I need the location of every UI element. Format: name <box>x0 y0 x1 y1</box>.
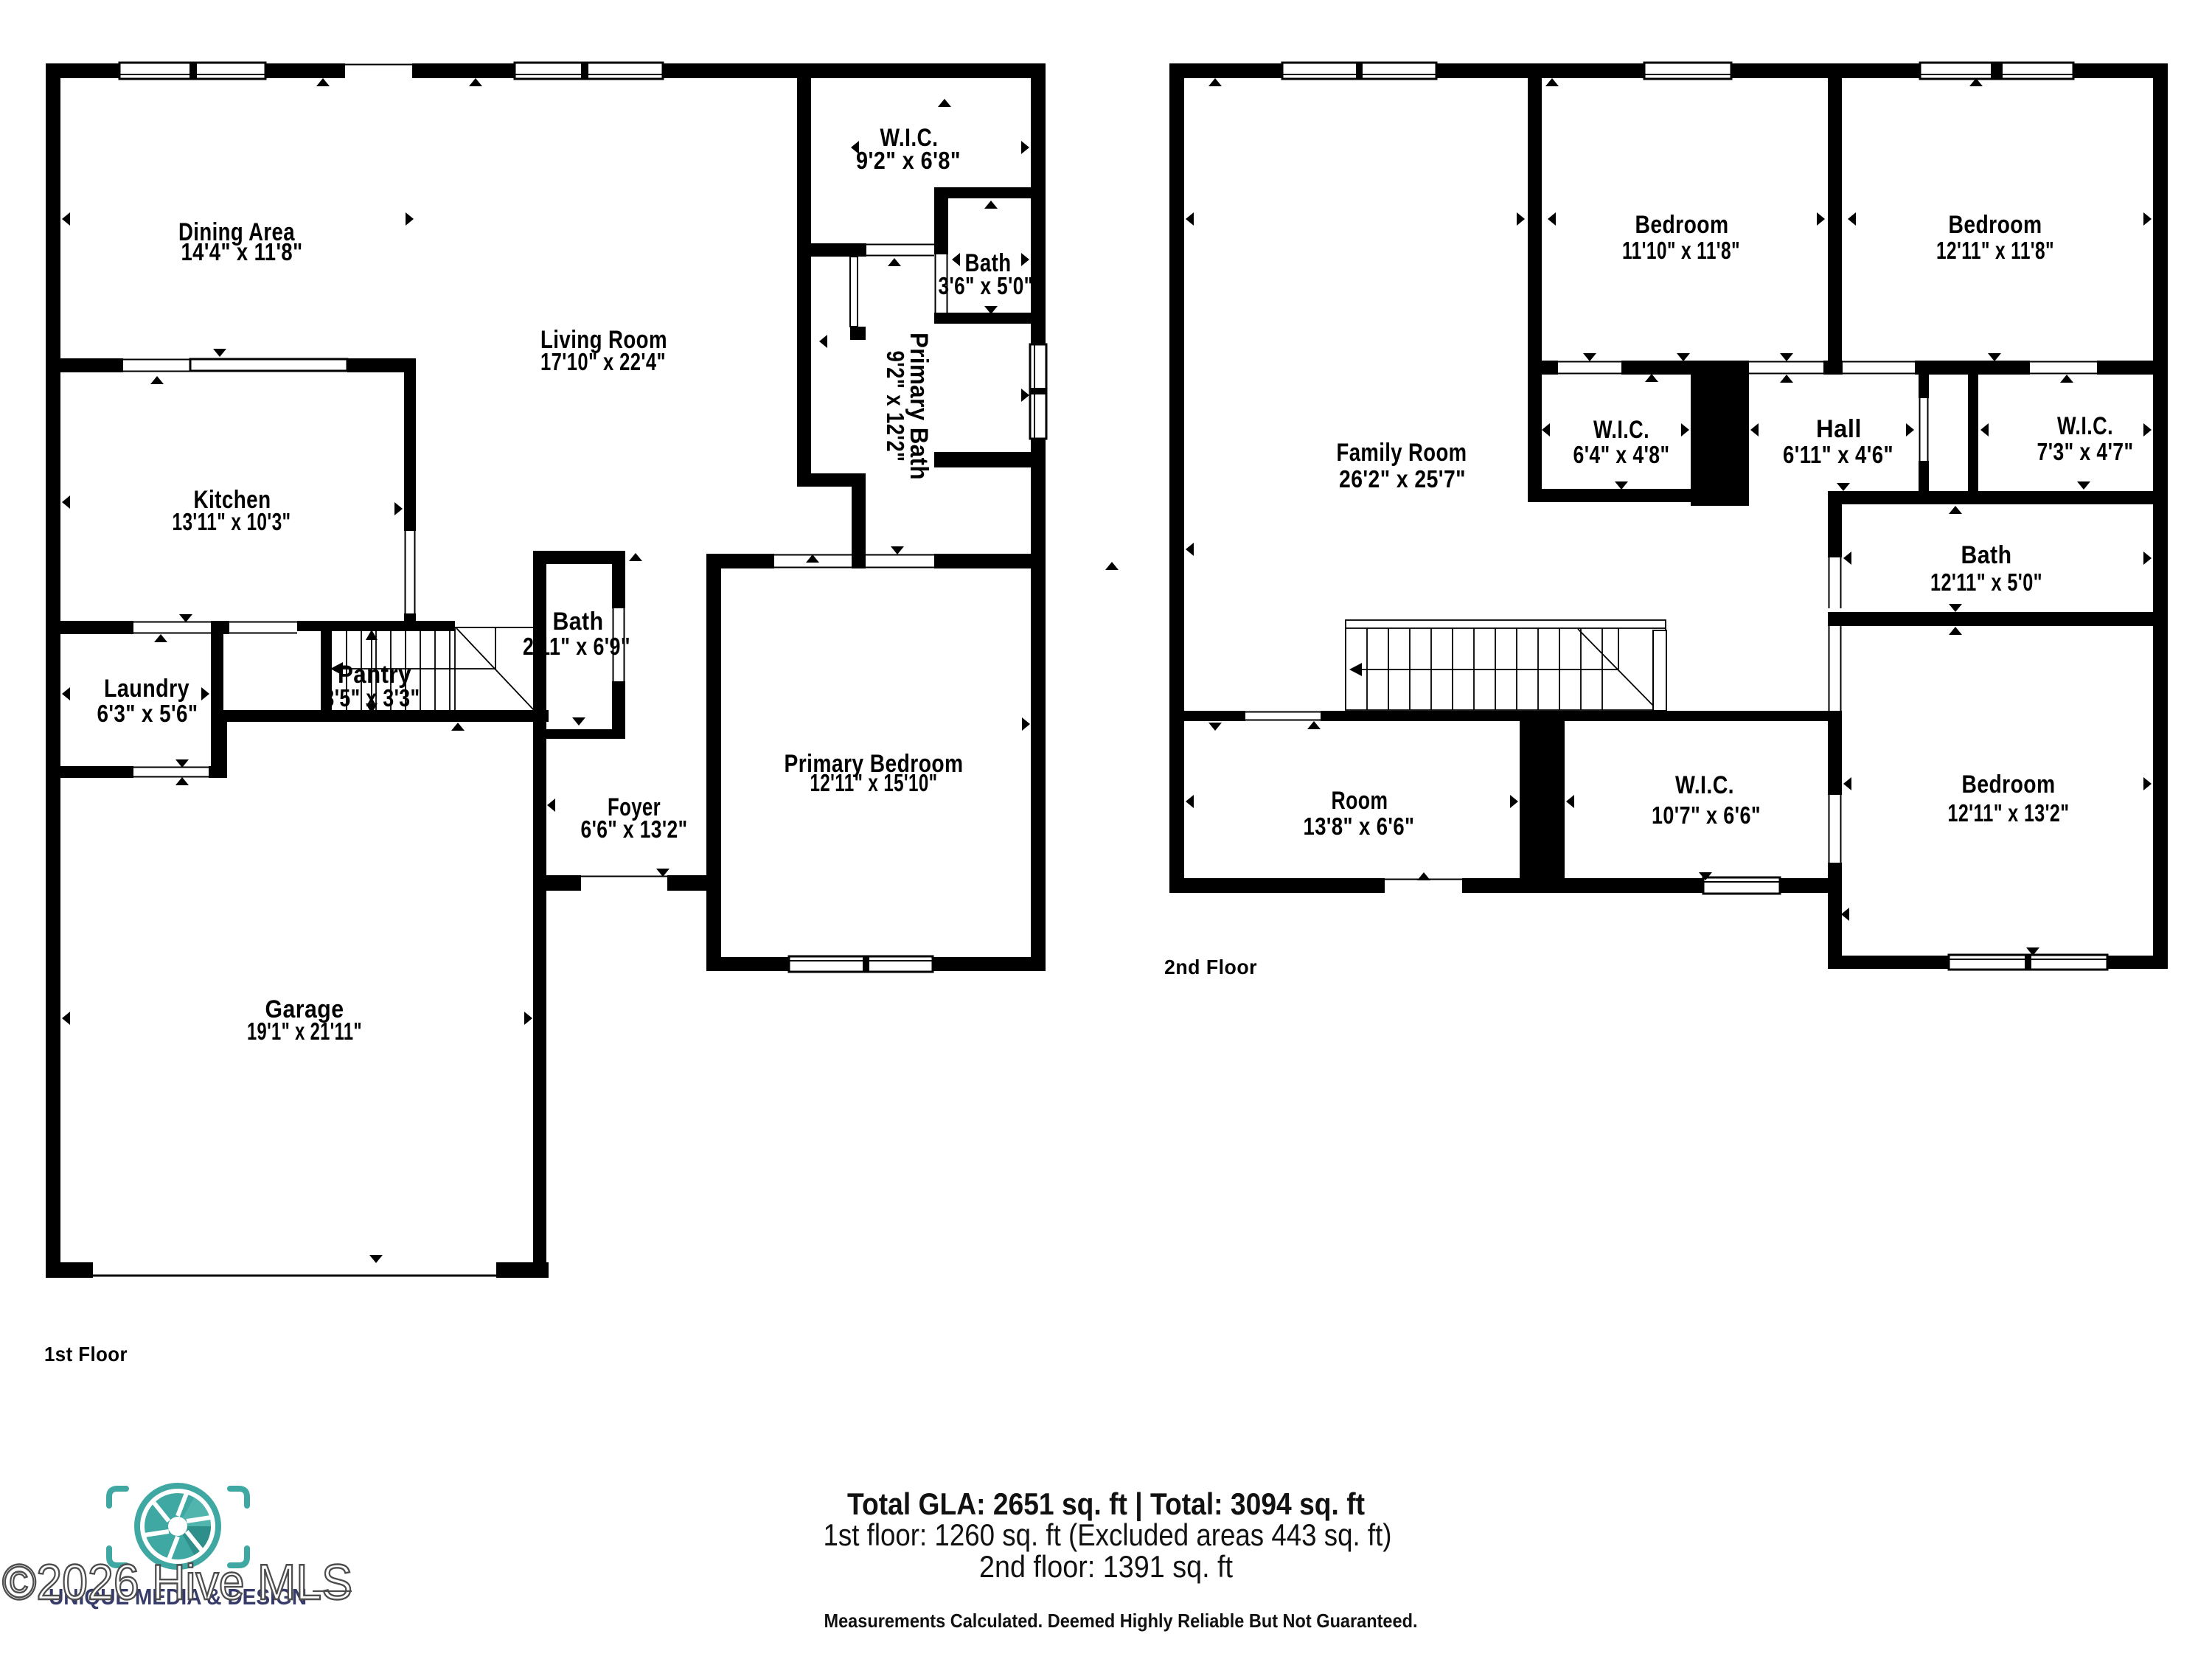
svg-text:7'3" x 4'7": 7'3" x 4'7" <box>2037 438 2134 465</box>
svg-text:Bath: Bath <box>1961 541 2012 569</box>
svg-text:Total GLA: 2651 sq. ft | Total: Total GLA: 2651 sq. ft | Total: 3094 sq.… <box>847 1486 1365 1522</box>
svg-text:1st floor: 1260 sq. ft (Exclud: 1st floor: 1260 sq. ft (Excluded areas 4… <box>824 1517 1392 1552</box>
svg-text:1st Floor: 1st Floor <box>44 1343 128 1366</box>
svg-text:2'11" x 6'9": 2'11" x 6'9" <box>523 633 630 660</box>
svg-text:Hall: Hall <box>1816 415 1862 443</box>
svg-text:2nd floor: 1391 sq. ft: 2nd floor: 1391 sq. ft <box>979 1549 1233 1584</box>
svg-text:Bedroom: Bedroom <box>1962 771 2056 799</box>
svg-text:14'4" x 11'8": 14'4" x 11'8" <box>181 238 303 265</box>
svg-text:17'10" x 22'4": 17'10" x 22'4" <box>540 348 666 375</box>
svg-text:12'11" x 15'10": 12'11" x 15'10" <box>810 769 938 796</box>
svg-text:9'2" x 6'8": 9'2" x 6'8" <box>856 147 961 174</box>
svg-text:W.I.C.: W.I.C. <box>2057 412 2113 440</box>
svg-text:6'3" x 5'6": 6'3" x 5'6" <box>97 700 198 727</box>
svg-text:12'11" x 5'0": 12'11" x 5'0" <box>1930 568 2042 596</box>
svg-text:26'2" x 25'7": 26'2" x 25'7" <box>1339 465 1466 493</box>
svg-text:Family Room: Family Room <box>1337 439 1467 467</box>
svg-text:13'11" x 10'3": 13'11" x 10'3" <box>173 508 291 535</box>
svg-text:13'8" x 6'6": 13'8" x 6'6" <box>1304 813 1415 840</box>
svg-text:3'5" x 3'3": 3'5" x 3'3" <box>324 684 420 712</box>
svg-text:19'1" x 21'11": 19'1" x 21'11" <box>247 1018 362 1045</box>
svg-text:W.I.C.: W.I.C. <box>1593 416 1649 444</box>
svg-text:12'11" x 13'2": 12'11" x 13'2" <box>1948 799 2070 827</box>
svg-text:Measurements Calculated. Deeme: Measurements Calculated. Deemed Highly R… <box>824 1610 1418 1632</box>
svg-text:Bedroom: Bedroom <box>1635 211 1729 239</box>
svg-text:11'10" x 11'8": 11'10" x 11'8" <box>1622 237 1740 264</box>
svg-text:9'2" x 12'2": 9'2" x 12'2" <box>882 351 909 462</box>
svg-text:6'11" x 4'6": 6'11" x 4'6" <box>1783 441 1893 468</box>
svg-text:©2026 Hive MLS: ©2026 Hive MLS <box>2 1554 352 1610</box>
svg-text:Room: Room <box>1332 787 1388 815</box>
svg-text:10'7" x 6'6": 10'7" x 6'6" <box>1652 801 1761 829</box>
svg-text:Bath: Bath <box>553 608 604 636</box>
svg-text:Bedroom: Bedroom <box>1949 211 2042 239</box>
svg-text:2nd Floor: 2nd Floor <box>1164 956 1257 978</box>
svg-text:6'6" x 13'2": 6'6" x 13'2" <box>581 815 688 843</box>
svg-text:12'11" x 11'8": 12'11" x 11'8" <box>1936 237 2054 264</box>
svg-text:W.I.C.: W.I.C. <box>1675 771 1734 799</box>
svg-text:Laundry: Laundry <box>104 675 189 703</box>
svg-text:6'4" x 4'8": 6'4" x 4'8" <box>1573 441 1670 468</box>
svg-text:3'6" x 5'0": 3'6" x 5'0" <box>939 272 1034 299</box>
